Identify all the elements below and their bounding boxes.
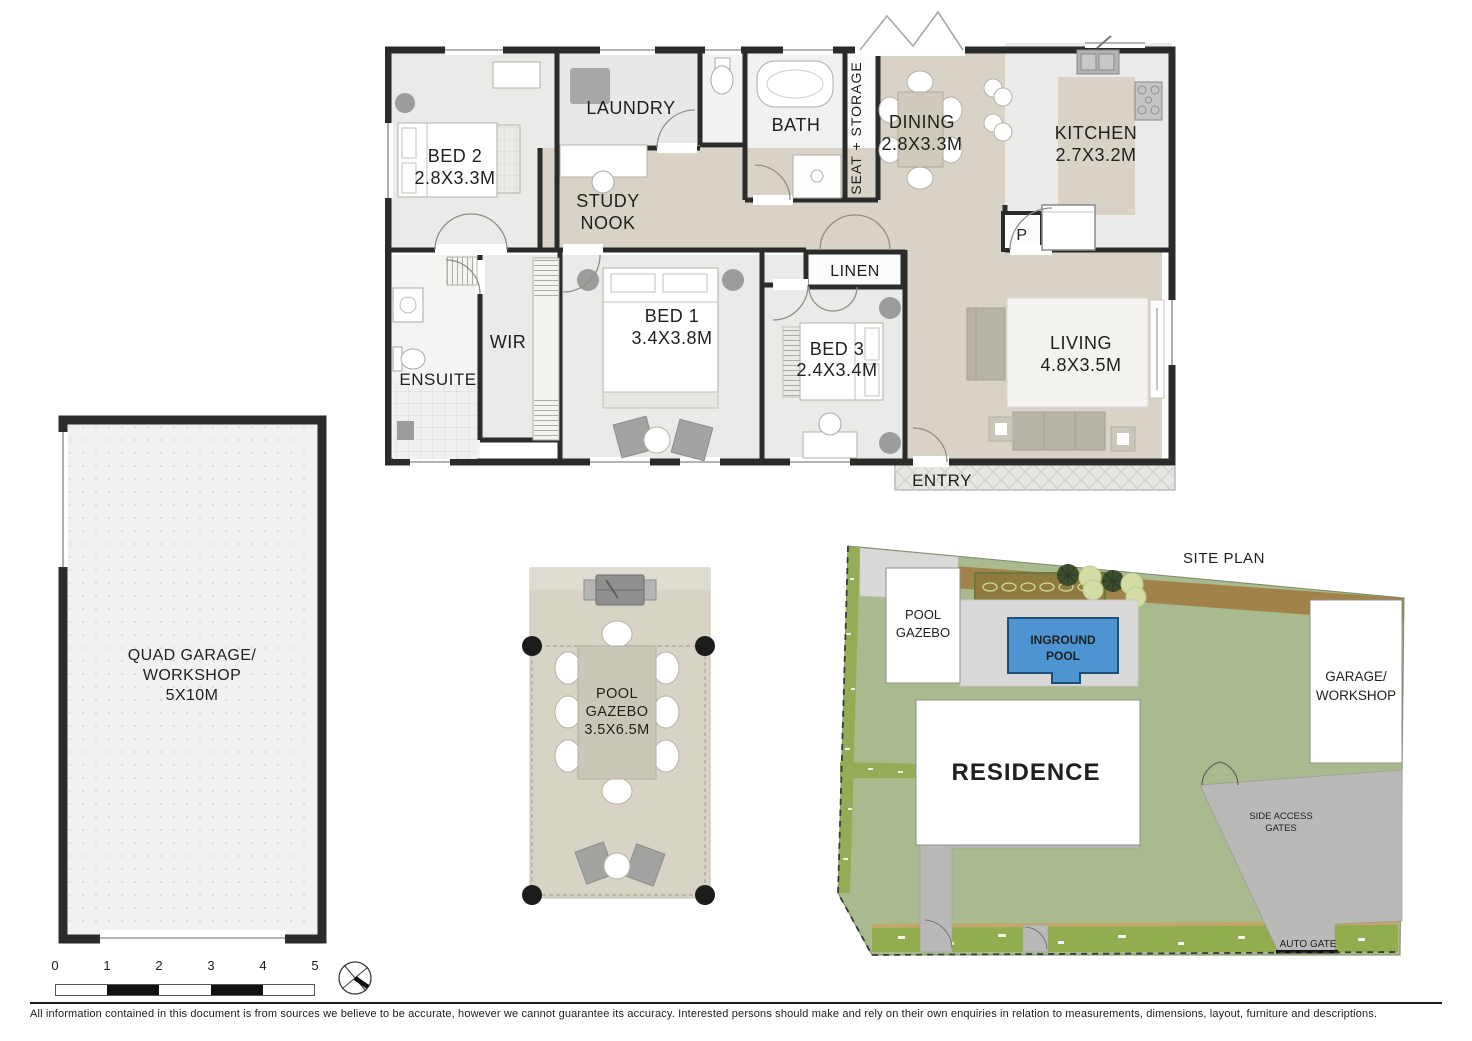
study-nook-label-1: STUDY bbox=[576, 191, 640, 211]
gazebo-label-1: POOL bbox=[596, 686, 638, 702]
bath-label: BATH bbox=[772, 115, 821, 135]
study-nook-label-2: NOOK bbox=[580, 213, 635, 233]
gazebo-label-2: GAZEBO bbox=[586, 704, 649, 720]
scale-tick-2: 2 bbox=[147, 958, 171, 973]
living-dims: 4.8X3.5M bbox=[1040, 355, 1121, 375]
kitchen-dims: 2.7X3.2M bbox=[1055, 145, 1136, 165]
gazebo-plan: POOL GAZEBO 3.5X6.5M bbox=[518, 558, 722, 908]
laundry-label: LAUNDRY bbox=[586, 98, 675, 118]
site-residence-label: RESIDENCE bbox=[951, 759, 1100, 786]
living-label: LIVING bbox=[1050, 333, 1112, 353]
linen-label: LINEN bbox=[830, 263, 880, 280]
pantry-label: P bbox=[1016, 227, 1027, 244]
scale-tick-5: 5 bbox=[303, 958, 327, 973]
floor-plan: BED 2 2.8X3.3M LAUNDRY STUDY NOOK BATH S… bbox=[385, 8, 1177, 494]
scale-tick-0: 0 bbox=[43, 958, 67, 973]
divider bbox=[30, 1002, 1442, 1004]
floorplan-document: BED 2 2.8X3.3M LAUNDRY STUDY NOOK BATH S… bbox=[0, 0, 1472, 1041]
dining-dims: 2.8X3.3M bbox=[881, 134, 962, 154]
side-access-gates-label-2: GATES bbox=[1265, 823, 1297, 834]
disclaimer: All information contained in this docume… bbox=[30, 1008, 1460, 1020]
wir-label: WIR bbox=[490, 332, 527, 352]
bed2-dims: 2.8X3.3M bbox=[414, 168, 495, 188]
seat-storage-label: SEAT + STORAGE bbox=[848, 61, 864, 194]
north-compass-icon bbox=[333, 956, 377, 1000]
garage-label-1: QUAD GARAGE/ bbox=[128, 647, 257, 664]
scale-bar: 0 1 2 3 4 5 bbox=[50, 958, 340, 1004]
site-gazebo-label-1: POOL bbox=[905, 607, 941, 622]
site-gazebo-label-2: GAZEBO bbox=[896, 625, 950, 640]
ensuite-label: ENSUITE bbox=[399, 370, 476, 389]
site-pool-label-1: INGROUND bbox=[1030, 633, 1096, 647]
site-garage-label-2: WORKSHOP bbox=[1316, 688, 1396, 703]
scale-tick-1: 1 bbox=[95, 958, 119, 973]
kitchen-label: KITCHEN bbox=[1055, 123, 1138, 143]
scale-bar-track bbox=[55, 984, 315, 996]
auto-gate-label: AUTO GATE bbox=[1280, 939, 1337, 950]
bed3-label: BED 3 bbox=[810, 339, 865, 359]
garage-side-opening bbox=[55, 432, 68, 567]
bed1-dims: 3.4X3.8M bbox=[631, 328, 712, 348]
scale-tick-3: 3 bbox=[199, 958, 223, 973]
garage-label-2: WORKSHOP bbox=[143, 667, 241, 684]
bed3-dims: 2.4X3.4M bbox=[796, 360, 877, 380]
site-plan-title: SITE PLAN bbox=[1183, 550, 1265, 567]
garage-dims: 5X10M bbox=[166, 687, 219, 704]
bed1-label: BED 1 bbox=[645, 306, 700, 326]
entry-label: ENTRY bbox=[912, 471, 972, 490]
bed2-label: BED 2 bbox=[428, 146, 483, 166]
site-pool-label-2: POOL bbox=[1046, 649, 1080, 663]
dining-label: DINING bbox=[889, 112, 955, 132]
site-plan: SITE PLAN POOL GAZEBO INGROUND POOL RESI… bbox=[828, 538, 1408, 962]
scale-tick-4: 4 bbox=[251, 958, 275, 973]
site-garage-label-1: GARAGE/ bbox=[1325, 669, 1387, 684]
side-access-gates-label-1: SIDE ACCESS bbox=[1249, 811, 1312, 822]
gazebo-dims: 3.5X6.5M bbox=[584, 722, 649, 738]
garage-plan: QUAD GARAGE/ WORKSHOP 5X10M bbox=[55, 412, 330, 947]
bbq bbox=[584, 575, 656, 605]
